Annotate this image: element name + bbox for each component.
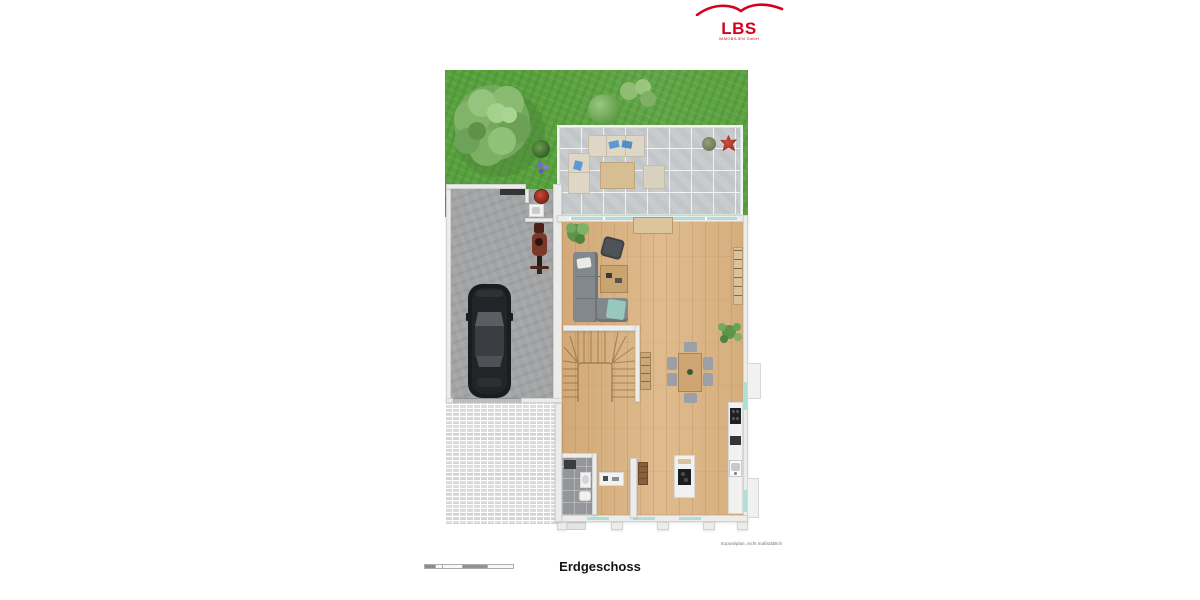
plan-disclaimer: Exposéplan, nicht maßstäblich <box>721 541 782 546</box>
sofa-seam <box>606 136 607 156</box>
sink-basin <box>731 463 740 471</box>
built-in-appliance <box>730 436 741 445</box>
facade-pillar <box>557 522 567 530</box>
round-bush <box>588 94 621 125</box>
right-porch <box>747 478 759 518</box>
pantry-cabinet <box>638 462 648 485</box>
washing-machine <box>564 460 576 469</box>
island-tray <box>678 459 691 464</box>
floor-plan <box>445 70 761 532</box>
facade-pillar <box>703 522 715 530</box>
outdoor-chair <box>643 165 665 189</box>
blue-cushion <box>573 160 583 171</box>
outdoor-sofa-horizontal <box>588 135 645 157</box>
floor-title: Erdgeschoss <box>0 559 1200 574</box>
facade-pillar <box>657 522 669 530</box>
logo-roof-swoosh-icon <box>693 2 785 16</box>
cabinet-item <box>603 476 608 481</box>
motorcycle <box>528 222 550 274</box>
bottom-window <box>587 517 609 520</box>
dining-table <box>678 353 702 392</box>
tech-room-wall <box>525 189 529 203</box>
sideboard <box>633 217 673 234</box>
dining-chair <box>684 393 697 403</box>
blue-cushion <box>621 140 632 149</box>
sofa-seam <box>569 172 589 173</box>
facade-pillar <box>611 522 623 530</box>
outdoor-sofa-vertical <box>568 153 590 194</box>
kitchen-island <box>674 455 695 498</box>
burner <box>732 417 735 420</box>
facade-pillar <box>737 522 748 530</box>
blue-cushion <box>608 140 619 149</box>
corner-plant <box>564 220 591 247</box>
paved-forecourt <box>445 403 557 525</box>
sofa-seam <box>576 276 601 277</box>
dining-chair <box>684 342 697 352</box>
page-canvas: LBS IMMOBILIEN GmbH <box>0 0 1200 600</box>
hall-cabinet <box>599 472 624 486</box>
car-top-view <box>466 282 513 400</box>
wc-right-wall <box>592 453 597 515</box>
garage-workbench <box>500 189 526 195</box>
wc-sink <box>580 472 591 488</box>
dining-chair <box>703 357 713 370</box>
burner <box>684 478 688 482</box>
white-pillow <box>576 257 591 269</box>
burner <box>681 472 685 476</box>
teal-blanket <box>606 299 626 320</box>
indoor-plant <box>716 318 744 346</box>
dining-chair <box>667 373 677 386</box>
oven-cooktop <box>730 408 741 424</box>
burner <box>736 410 739 413</box>
hall-kitchen-wall <box>630 458 637 518</box>
coffee-table <box>600 265 628 293</box>
utility-sink <box>529 204 544 217</box>
logo-text: LBS <box>693 21 785 36</box>
burner <box>732 410 735 413</box>
large-tree <box>447 73 547 185</box>
dining-chair <box>667 357 677 370</box>
table-decor <box>615 278 622 283</box>
corner-sofa-chaise <box>597 298 628 322</box>
winder-staircase <box>563 331 635 402</box>
blue-flowers <box>535 160 551 176</box>
outdoor-coffee-table <box>600 162 635 189</box>
dining-chair <box>703 373 713 386</box>
sink-basin <box>582 475 589 484</box>
red-plant <box>720 135 737 152</box>
sink-basin <box>532 207 540 214</box>
logo-subtitle: IMMOBILIEN GmbH <box>693 37 785 41</box>
cabinet-item <box>612 477 619 481</box>
hall-left-wall <box>555 403 562 522</box>
burner <box>736 417 739 420</box>
bottom-window <box>679 517 701 520</box>
lbs-logo: LBS IMMOBILIEN GmbH <box>693 2 785 38</box>
hall-dresser <box>640 352 651 390</box>
olive-plant <box>702 137 716 151</box>
right-bay-window <box>747 363 761 399</box>
table-decor <box>606 273 612 278</box>
terrace <box>557 125 743 217</box>
potted-plant <box>532 140 550 158</box>
island-cooktop <box>678 469 691 485</box>
table-centerpiece <box>687 369 693 375</box>
corner-sofa-vertical <box>573 252 598 322</box>
boiler-red <box>535 190 548 203</box>
wall-shelf <box>733 247 743 305</box>
bush-cluster <box>619 79 657 109</box>
kitchen-sink <box>729 460 742 477</box>
faucet <box>734 472 737 475</box>
toilet <box>579 491 591 501</box>
